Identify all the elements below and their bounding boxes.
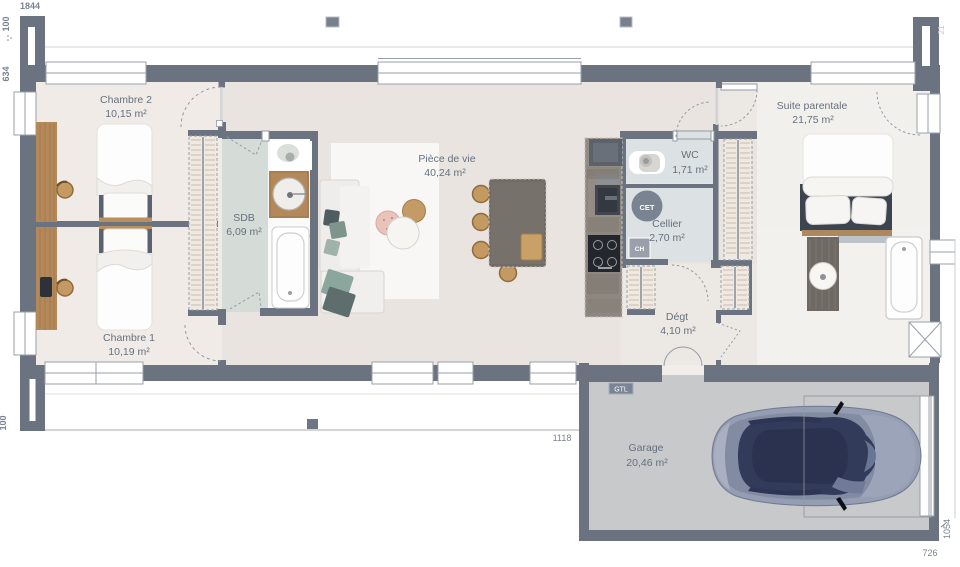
svg-text:CH: CH	[635, 246, 645, 253]
svg-text:20,46 m²: 20,46 m²	[626, 457, 668, 469]
svg-text:4,10 m²: 4,10 m²	[660, 325, 696, 337]
svg-text:726: 726	[922, 548, 937, 558]
svg-text:10,19 m²: 10,19 m²	[108, 346, 150, 358]
svg-text:CET: CET	[640, 203, 655, 212]
svg-text:40,24 m²: 40,24 m²	[424, 167, 466, 179]
svg-text:1054: 1054	[942, 519, 952, 539]
svg-text:100: 100	[0, 415, 8, 430]
svg-text:634: 634	[1, 66, 11, 81]
svg-text:SDB: SDB	[233, 212, 255, 224]
svg-text:Chambre 1: Chambre 1	[103, 332, 155, 344]
svg-text:10,15 m²: 10,15 m²	[105, 108, 147, 120]
svg-text:WC: WC	[681, 149, 699, 161]
svg-text:Suite parentale: Suite parentale	[777, 100, 848, 112]
svg-text:21,75 m²: 21,75 m²	[792, 114, 834, 126]
svg-text:100: 100	[1, 16, 11, 31]
svg-text:Chambre 2: Chambre 2	[100, 94, 152, 106]
svg-text:Pièce de vie: Pièce de vie	[418, 153, 475, 165]
svg-text:Garage: Garage	[628, 442, 663, 454]
svg-text:Dégt: Dégt	[666, 311, 688, 323]
svg-text:1844: 1844	[20, 1, 40, 11]
svg-text:Cellier: Cellier	[652, 218, 682, 230]
svg-text:2,70 m²: 2,70 m²	[649, 232, 685, 244]
svg-text:1118: 1118	[553, 433, 572, 443]
svg-text:1,71 m²: 1,71 m²	[672, 164, 708, 176]
svg-text:21: 21	[937, 25, 946, 34]
svg-text:GTL: GTL	[614, 387, 628, 394]
svg-text:6,09 m²: 6,09 m²	[226, 226, 262, 238]
